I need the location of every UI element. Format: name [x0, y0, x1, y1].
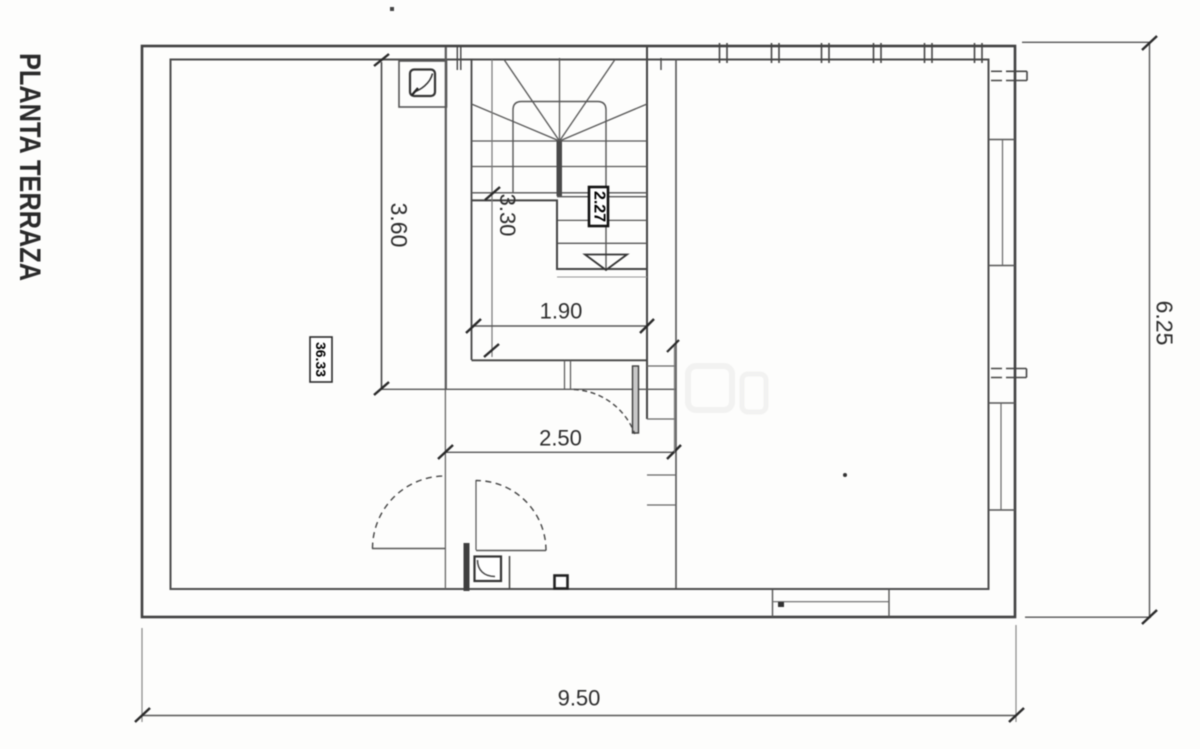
svg-text:9.50: 9.50: [558, 686, 601, 711]
svg-text:2.50: 2.50: [539, 426, 582, 451]
svg-text:3.60: 3.60: [386, 203, 412, 248]
svg-text:6.25: 6.25: [1152, 301, 1178, 346]
svg-text:1.90: 1.90: [540, 299, 583, 324]
svg-text:2.27: 2.27: [591, 191, 608, 222]
svg-text:3.30: 3.30: [495, 194, 520, 237]
svg-text:PLANTA TERRAZA: PLANTA TERRAZA: [13, 53, 46, 281]
svg-text:36.33: 36.33: [313, 342, 329, 377]
